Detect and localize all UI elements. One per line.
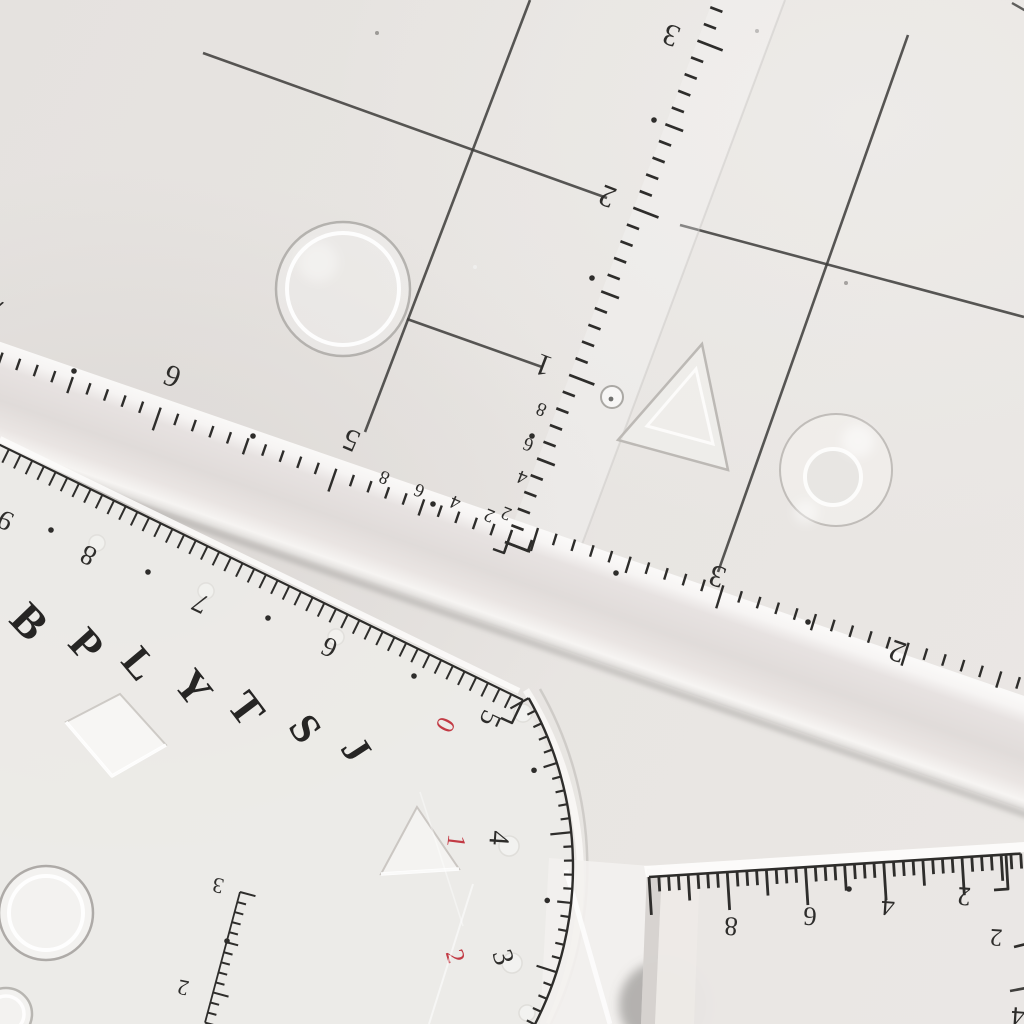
scale-number: 5 xyxy=(337,422,365,460)
bottom-ruler-scale-tick xyxy=(757,870,758,885)
bottom-ruler-scale-tick xyxy=(796,868,797,883)
paper-speck xyxy=(375,31,379,35)
pencil-line-corner-fragment xyxy=(1012,3,1024,11)
template-arc-scale-halfdot xyxy=(544,898,550,904)
bottom-ruler-scale-tick xyxy=(747,871,748,886)
diagonal-ruler-lower-scale-tick xyxy=(831,620,835,631)
bottom-ruler-light-stripe xyxy=(655,866,700,1024)
bottom-ruler-scale-tick xyxy=(737,871,738,886)
donut-highlight xyxy=(842,425,874,457)
bottom-ruler-scale-tick xyxy=(982,856,983,871)
template-arc-scale-tick xyxy=(563,888,572,889)
half-dot xyxy=(613,570,619,576)
diagonal-ruler-lower-scale-tick xyxy=(887,637,891,648)
half-dot xyxy=(145,569,151,575)
bottom-ruler-scale-tick xyxy=(669,876,670,891)
scale-number: 2 xyxy=(594,178,621,216)
bottom-ruler-scale-tick xyxy=(717,873,718,888)
scale-number: 6 xyxy=(802,901,818,932)
scale-number: 4 xyxy=(880,891,896,922)
half-dot xyxy=(224,938,230,944)
scale-number: 6 xyxy=(520,432,536,455)
scene-svg: 3218642765864232987654301286422432BPLYTS… xyxy=(0,0,1024,1024)
scale-number: 2 xyxy=(989,923,1003,951)
bottom-ruler-scale-tick xyxy=(698,874,699,889)
bottom-ruler-scale-tick xyxy=(864,863,865,878)
bottom-ruler-scale-tick xyxy=(688,875,690,901)
bottom-ruler-scale-tick xyxy=(913,860,914,875)
bottom-ruler-scale-tick xyxy=(894,862,895,877)
pencil-line-vertical-1 xyxy=(365,0,530,432)
half-dot xyxy=(805,619,811,625)
pencil-line-horizontal-1 xyxy=(203,53,607,198)
half-dot xyxy=(589,275,595,281)
template-arc-scale-halfdot xyxy=(531,767,537,773)
pencil-line-horizontal-2 xyxy=(407,319,542,367)
template-arc-scale-tick xyxy=(557,901,571,902)
bottom-ruler-scale-tick xyxy=(678,875,679,890)
half-dot xyxy=(265,615,271,621)
diagonal-ruler-lower-scale-tick xyxy=(942,654,946,665)
diagonal-ruler-lower-scale-tick xyxy=(961,660,965,671)
bottom-ruler-scale-tick xyxy=(952,858,953,873)
bottom-ruler-scale-tick xyxy=(815,867,816,882)
bottom-ruler-scale-tick xyxy=(835,865,836,880)
small-ring-hole xyxy=(609,397,614,402)
bottom-ruler-scale-tick xyxy=(659,876,660,891)
half-dot xyxy=(411,673,417,679)
scale-number: 3 xyxy=(658,17,685,55)
half-dot xyxy=(651,117,657,123)
bottom-ruler-scale-tick xyxy=(972,857,973,872)
donut-highlight xyxy=(794,500,818,524)
vertical-ruler-body xyxy=(505,0,785,563)
bottom-ruler-scale-tick xyxy=(991,855,992,870)
diagonal-ruler-lower-scale-tick xyxy=(850,626,854,637)
bottom-ruler-scale-tick xyxy=(786,868,787,883)
circle-cutout-bottom-left xyxy=(0,866,93,960)
scale-number: 8 xyxy=(533,397,549,420)
scale-number: 7 xyxy=(0,292,10,330)
scale-number: 3 xyxy=(704,558,730,596)
bottom-ruler-scale-tick xyxy=(854,864,855,879)
paper-speck xyxy=(844,281,848,285)
scale-number: 1 xyxy=(530,347,557,385)
diagonal-ruler-lower-scale-tick xyxy=(979,666,983,677)
scale-number: 4 xyxy=(482,830,515,847)
diagonal-ruler-lower-scale-tick xyxy=(996,671,1001,687)
bottom-ruler-scale-tick xyxy=(933,859,934,874)
template-arc-scale-tick xyxy=(561,818,570,819)
circle-piece-highlight xyxy=(298,242,338,282)
paper-speck xyxy=(473,265,477,269)
bottom-ruler-scale-tick xyxy=(1011,854,1012,869)
half-dot xyxy=(846,886,852,892)
template-arc-scale-tick xyxy=(560,916,569,917)
bottom-ruler-scale-tick xyxy=(923,860,925,886)
bottom-ruler-scale-tick xyxy=(903,861,904,876)
scale-number: 8 xyxy=(723,911,739,942)
half-dot xyxy=(250,433,256,439)
bottom-ruler-scale-tick xyxy=(874,863,875,878)
bottom-ruler-scale-tick xyxy=(1001,855,1003,881)
bottom-ruler-scale-tick xyxy=(708,873,709,888)
bottom-ruler-scale-tick xyxy=(942,859,943,874)
scale-number: 6 xyxy=(158,358,186,396)
half-dot xyxy=(430,501,436,507)
diagonal-ruler-lower-scale-tick xyxy=(924,648,928,659)
bottom-ruler-scale-tick xyxy=(776,869,777,884)
bottom-ruler-scale-tick xyxy=(825,866,826,881)
half-dot xyxy=(48,527,54,533)
half-dot xyxy=(71,368,77,374)
donut-piece-hole xyxy=(805,449,861,505)
bottom-ruler-scale-tick xyxy=(1021,854,1022,869)
molded-bump xyxy=(519,1005,535,1021)
bottom-ruler-scale-tick xyxy=(766,870,768,896)
pencil-line-horizontal-3 xyxy=(680,225,1024,317)
circle-piece-outline xyxy=(276,222,410,356)
photo-drafting-rulers: 3218642765864232987654301286422432BPLYTS… xyxy=(0,0,1024,1024)
diagonal-ruler-lower-scale-tick xyxy=(868,631,872,642)
template-arc-scale-tick xyxy=(563,846,572,847)
scale-number: 2 xyxy=(956,881,972,912)
diagonal-ruler-lower-scale-tick xyxy=(1016,677,1020,688)
bottom-ruler-scale-tick xyxy=(845,865,847,891)
